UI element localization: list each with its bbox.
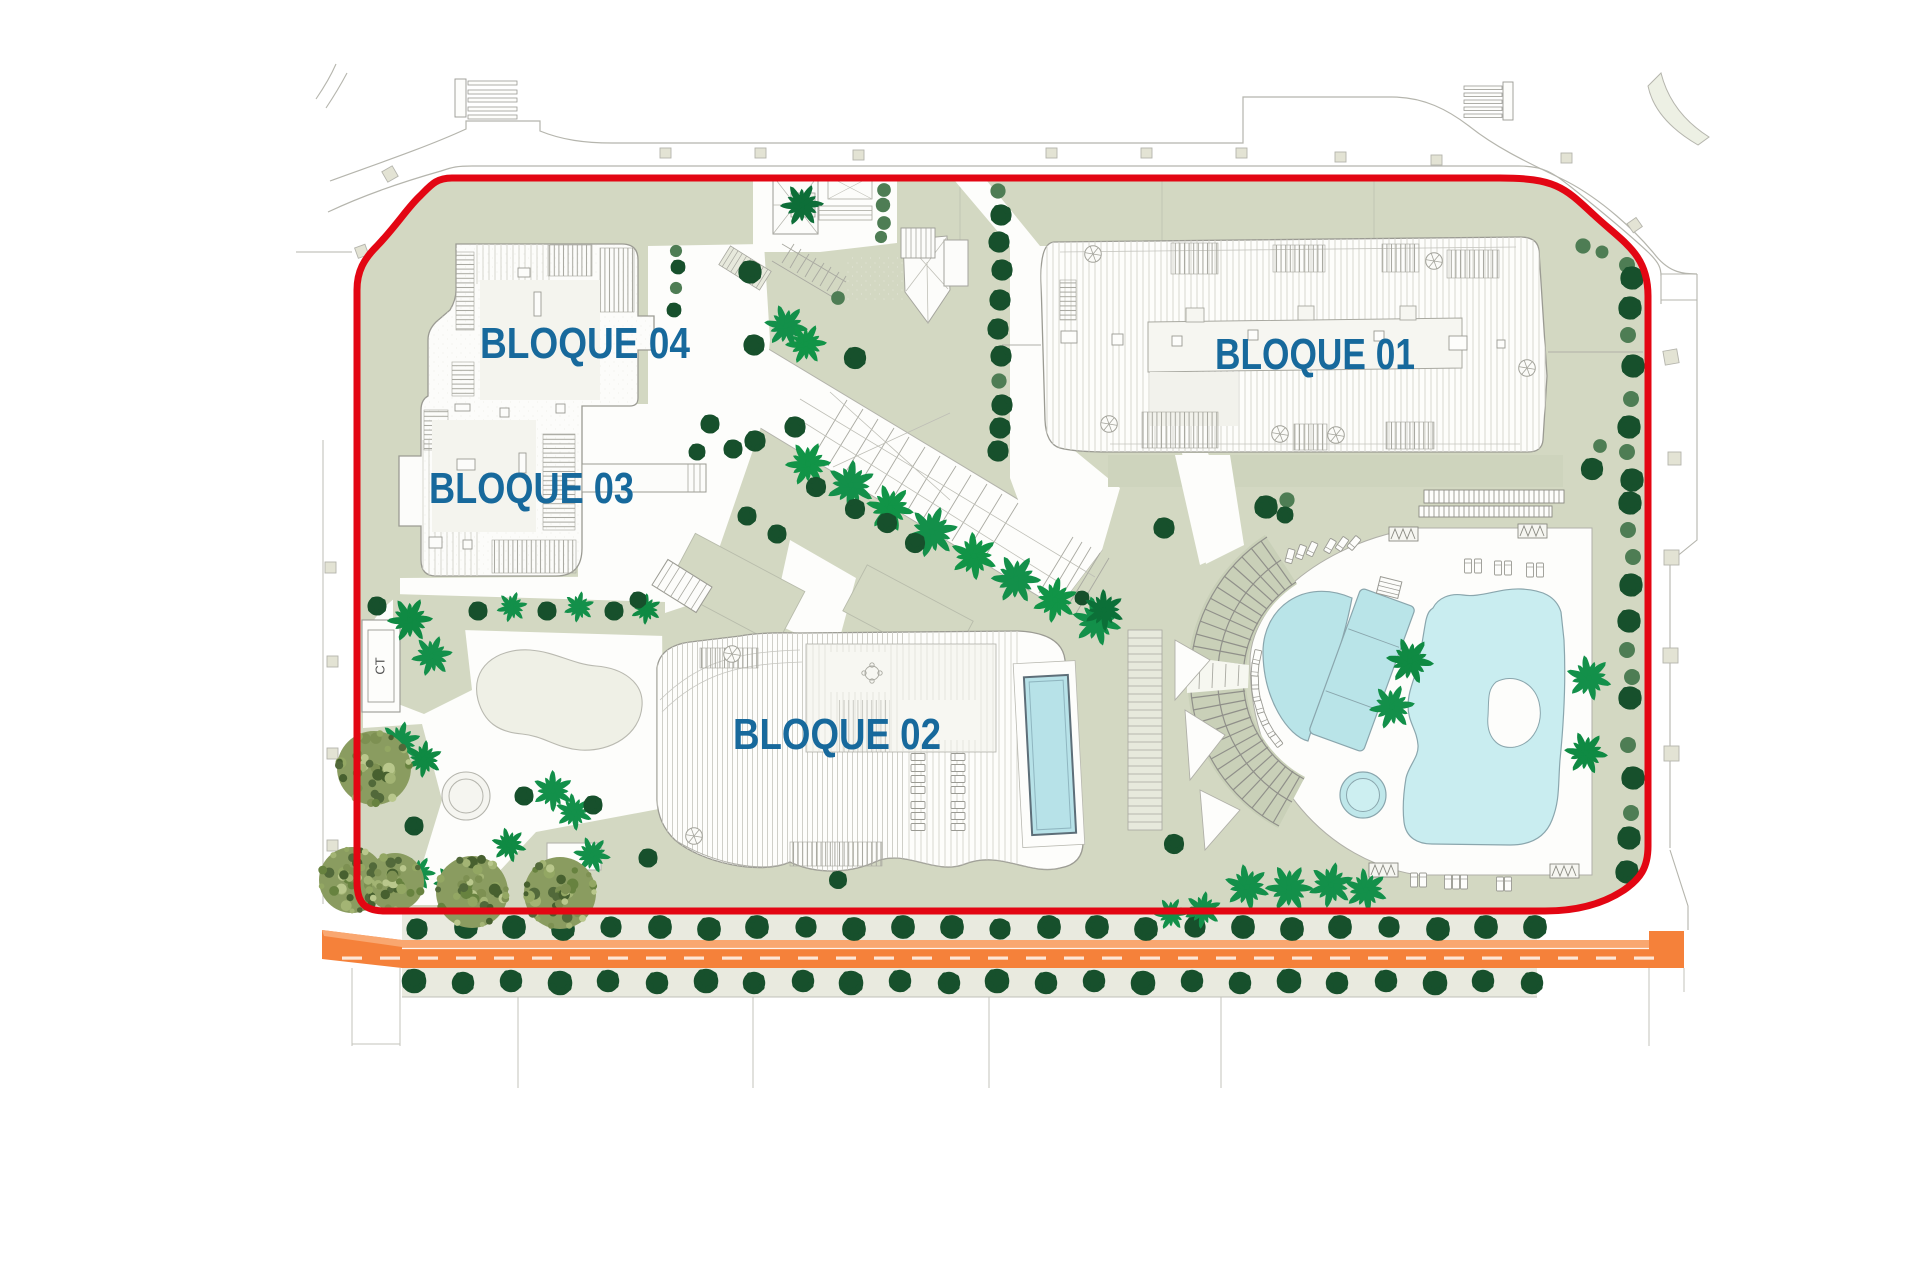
- svg-text:BLOQUE 01: BLOQUE 01: [1215, 330, 1415, 379]
- svg-text:CT: CT: [372, 657, 387, 674]
- svg-text:BLOQUE 03: BLOQUE 03: [429, 464, 634, 513]
- svg-text:BLOQUE 02: BLOQUE 02: [733, 710, 941, 759]
- svg-text:BLOQUE 04: BLOQUE 04: [480, 319, 690, 368]
